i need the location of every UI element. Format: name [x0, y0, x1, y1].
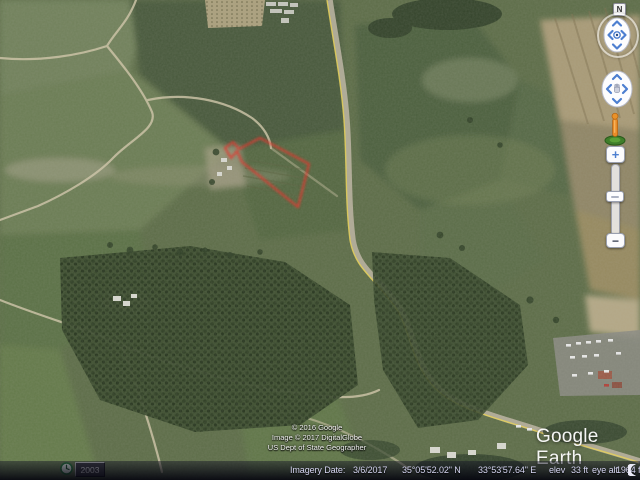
crescent-moon-spinner-icon	[628, 464, 640, 476]
zoom-out-button[interactable]: −	[606, 233, 625, 248]
zoom-slider-handle[interactable]	[606, 191, 624, 202]
satellite-map-canvas[interactable]	[0, 0, 640, 480]
minus-icon: −	[612, 235, 619, 247]
move-joystick[interactable]	[601, 70, 633, 108]
look-joystick[interactable]	[603, 17, 631, 53]
attribution-line: Image © 2017 DigitalGlobe	[254, 433, 380, 443]
imagery-date-label: Imagery Date:	[290, 465, 345, 475]
attribution-line: US Dept of State Geographer	[254, 443, 380, 453]
google-earth-window: N +	[0, 0, 640, 480]
imagery-attribution: © 2016 Google Image © 2017 DigitalGlobe …	[254, 423, 380, 453]
attribution-line: © 2016 Google	[254, 423, 380, 433]
longitude-readout: 33°53'57.64" E	[478, 465, 536, 475]
street-view-pegman[interactable]	[602, 111, 628, 146]
status-bar: Imagery Date: 3/6/2017 35°05'52.02" N 33…	[0, 461, 640, 480]
photo-grain	[0, 0, 640, 480]
elevation-value: 33 ft	[571, 465, 588, 475]
zoom-in-button[interactable]: +	[606, 146, 625, 163]
latitude-readout: 35°05'52.02" N	[402, 465, 461, 475]
eye-pupil-icon	[616, 34, 618, 36]
eye-altitude-label: eye alt	[592, 465, 618, 475]
imagery-date-value: 3/6/2017	[353, 465, 387, 475]
hand-icon	[614, 84, 619, 93]
elevation-label: elev	[549, 465, 565, 475]
plus-icon: +	[612, 148, 620, 161]
